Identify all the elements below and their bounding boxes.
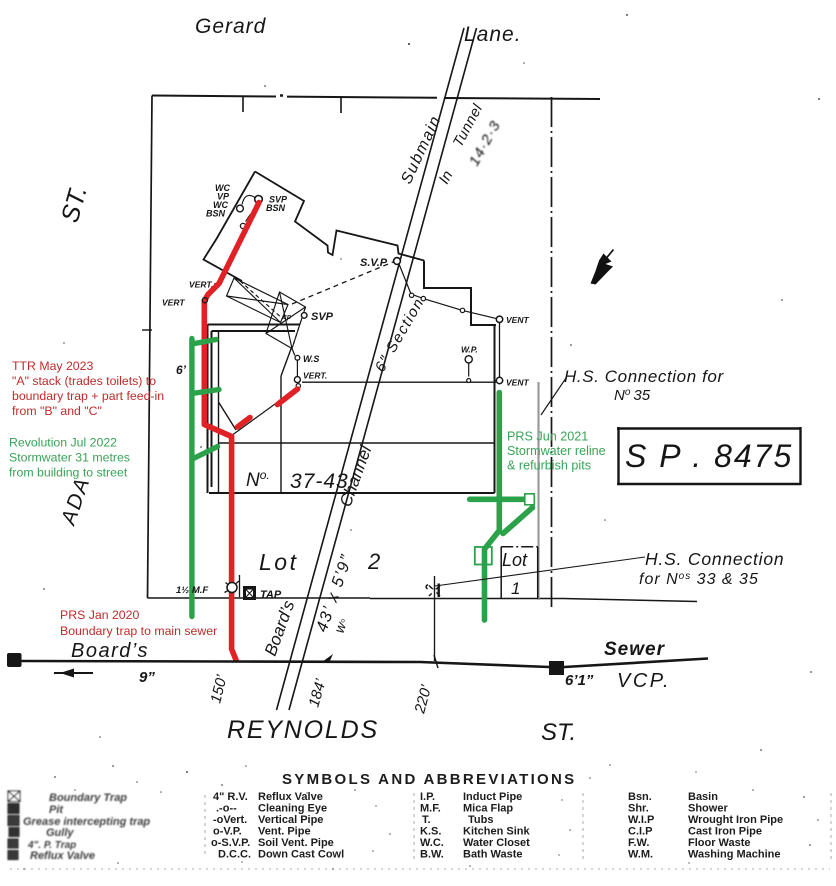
svg-text:Sewer: Sewer xyxy=(604,639,666,660)
svg-text:& refurbish pits: & refurbish pits xyxy=(507,459,591,473)
svg-text:boundary trap + part feed-in: boundary trap + part feed-in xyxy=(12,389,164,403)
svg-text:Lot: Lot xyxy=(259,549,298,575)
svg-text:Vent. Pipe: Vent. Pipe xyxy=(258,826,311,838)
svg-text:SVP: SVP xyxy=(311,311,334,323)
svg-text:1½ M.F: 1½ M.F xyxy=(176,585,208,596)
svg-text:Basin: Basin xyxy=(688,791,718,803)
svg-text:6’: 6’ xyxy=(176,363,187,377)
svg-text:M.F.: M.F. xyxy=(420,803,441,815)
svg-text:Kitchen Sink: Kitchen Sink xyxy=(463,826,531,838)
svg-text:I.P.: I.P. xyxy=(420,791,435,803)
svg-text:from building to street: from building to street xyxy=(9,466,128,480)
svg-text:Down Cast Cowl: Down Cast Cowl xyxy=(258,849,344,861)
svg-text:-oVert.: -oVert. xyxy=(213,814,247,826)
svg-text:S.V.P: S.V.P xyxy=(360,257,388,269)
svg-text:37-43: 37-43 xyxy=(290,470,349,493)
svg-text:PRS Jan 2020: PRS Jan 2020 xyxy=(60,608,139,622)
svg-text:K.S.: K.S. xyxy=(420,826,441,838)
svg-text:BSN: BSN xyxy=(266,203,286,213)
svg-text:W.P.: W.P. xyxy=(461,345,478,355)
svg-text:Soil Vent. Pipe: Soil Vent. Pipe xyxy=(258,837,334,849)
svg-text:TTR May 2023: TTR May 2023 xyxy=(12,359,93,373)
svg-text:W.C.: W.C. xyxy=(420,837,444,849)
svg-text:No.: No. xyxy=(246,468,270,491)
svg-text:ADA: ADA xyxy=(56,474,94,530)
svg-text:Stormwater reline: Stormwater reline xyxy=(507,444,606,458)
svg-text:for Nos 33 & 35: for Nos 33 & 35 xyxy=(639,571,759,588)
svg-text:Washing Machine: Washing Machine xyxy=(688,849,781,861)
svg-text:from "B" and "C": from "B" and "C" xyxy=(12,404,102,418)
svg-text:Gerard: Gerard xyxy=(195,15,267,38)
svg-text:B.W.: B.W. xyxy=(420,849,444,861)
svg-text:VENT: VENT xyxy=(506,315,529,325)
svg-text:SYMBOLS AND ABBREVIATIONS: SYMBOLS AND ABBREVIATIONS xyxy=(282,771,576,788)
svg-text:"A" stack (trades toilets) to: "A" stack (trades toilets) to xyxy=(12,374,156,388)
svg-text:150’: 150’ xyxy=(207,673,231,705)
svg-text:184’: 184’ xyxy=(306,677,330,710)
svg-text:H.S. Connection for: H.S. Connection for xyxy=(564,367,724,386)
svg-text:Shower: Shower xyxy=(688,803,728,815)
svg-text:1: 1 xyxy=(511,579,520,598)
svg-text:ST.: ST. xyxy=(56,183,93,226)
svg-text:Cleaning Eye: Cleaning Eye xyxy=(258,803,327,815)
svg-text:4" R.V.: 4" R.V. xyxy=(213,791,248,803)
svg-text:Shr.: Shr. xyxy=(628,803,649,815)
svg-text:W.S: W.S xyxy=(303,354,319,364)
svg-text:6’1”: 6’1” xyxy=(565,672,594,689)
svg-text:Bath Waste: Bath Waste xyxy=(463,849,523,861)
svg-text:Induct Pipe: Induct Pipe xyxy=(463,791,522,803)
svg-text:Mica Flap: Mica Flap xyxy=(463,803,513,815)
svg-text:Lot: Lot xyxy=(502,550,528,570)
svg-text:ST.: ST. xyxy=(541,719,576,746)
svg-text:Floor Waste: Floor Waste xyxy=(688,837,751,849)
svg-text:Board’s: Board’s xyxy=(71,640,149,662)
svg-text:cp: cp xyxy=(283,314,292,321)
svg-text:.-o--: .-o-- xyxy=(216,803,237,815)
svg-text:VENT: VENT xyxy=(506,378,529,388)
svg-text:Boundary trap to main sewer: Boundary trap to main sewer xyxy=(60,624,217,638)
svg-text:220’: 220’ xyxy=(411,683,435,716)
svg-text:VERT.: VERT. xyxy=(303,371,327,381)
svg-text:Revolution Jul 2022: Revolution Jul 2022 xyxy=(9,436,117,450)
svg-text:o-V.P.: o-V.P. xyxy=(213,826,242,838)
svg-text:Vertical Pipe: Vertical Pipe xyxy=(258,814,323,826)
svg-text:Tubs: Tubs xyxy=(468,814,493,826)
svg-text:REYNOLDS: REYNOLDS xyxy=(227,716,379,744)
svg-text:C.I.P: C.I.P xyxy=(628,826,652,838)
svg-text:S P . 8475: S P . 8475 xyxy=(625,438,793,474)
svg-text:TAP: TAP xyxy=(260,589,282,601)
svg-text:Bsn.: Bsn. xyxy=(628,791,652,803)
svg-text:Water Closet: Water Closet xyxy=(463,837,530,849)
svg-text:In: In xyxy=(436,168,457,187)
svg-text:F.W.: F.W. xyxy=(628,837,649,849)
svg-text:Reflux Valve: Reflux Valve xyxy=(30,850,95,862)
svg-text:H.S. Connection: H.S. Connection xyxy=(645,549,784,569)
svg-text:w◦: w◦ xyxy=(331,615,351,634)
svg-text:W.M.: W.M. xyxy=(628,849,653,861)
svg-text:D.C.C.: D.C.C. xyxy=(218,849,251,861)
svg-text:W.I.P: W.I.P xyxy=(628,814,654,826)
svg-text:Gully: Gully xyxy=(46,827,74,839)
svg-text:Stormwater 31 metres: Stormwater 31 metres xyxy=(9,451,130,465)
svg-text:VERT: VERT xyxy=(162,298,185,308)
svg-text:Reflux Valve: Reflux Valve xyxy=(258,791,323,803)
svg-text:9”: 9” xyxy=(139,669,155,686)
svg-text:VCP.: VCP. xyxy=(617,670,671,692)
svg-text:Boundary Trap: Boundary Trap xyxy=(49,792,127,804)
svg-text:PRS Jun 2021: PRS Jun 2021 xyxy=(507,430,588,444)
svg-text:No 35: No 35 xyxy=(614,387,651,404)
svg-text:BSN: BSN xyxy=(206,209,226,219)
svg-text:2: 2 xyxy=(367,549,380,574)
svg-text:Cast Iron Pipe: Cast Iron Pipe xyxy=(688,826,762,838)
svg-text:Pit: Pit xyxy=(49,804,64,816)
svg-text:Wrought Iron Pipe: Wrought Iron Pipe xyxy=(688,814,783,826)
svg-text:Grease intercepting trap: Grease intercepting trap xyxy=(23,816,150,828)
svg-text:T.: T. xyxy=(422,814,431,826)
svg-text:o-S.V.P.: o-S.V.P. xyxy=(211,837,250,849)
